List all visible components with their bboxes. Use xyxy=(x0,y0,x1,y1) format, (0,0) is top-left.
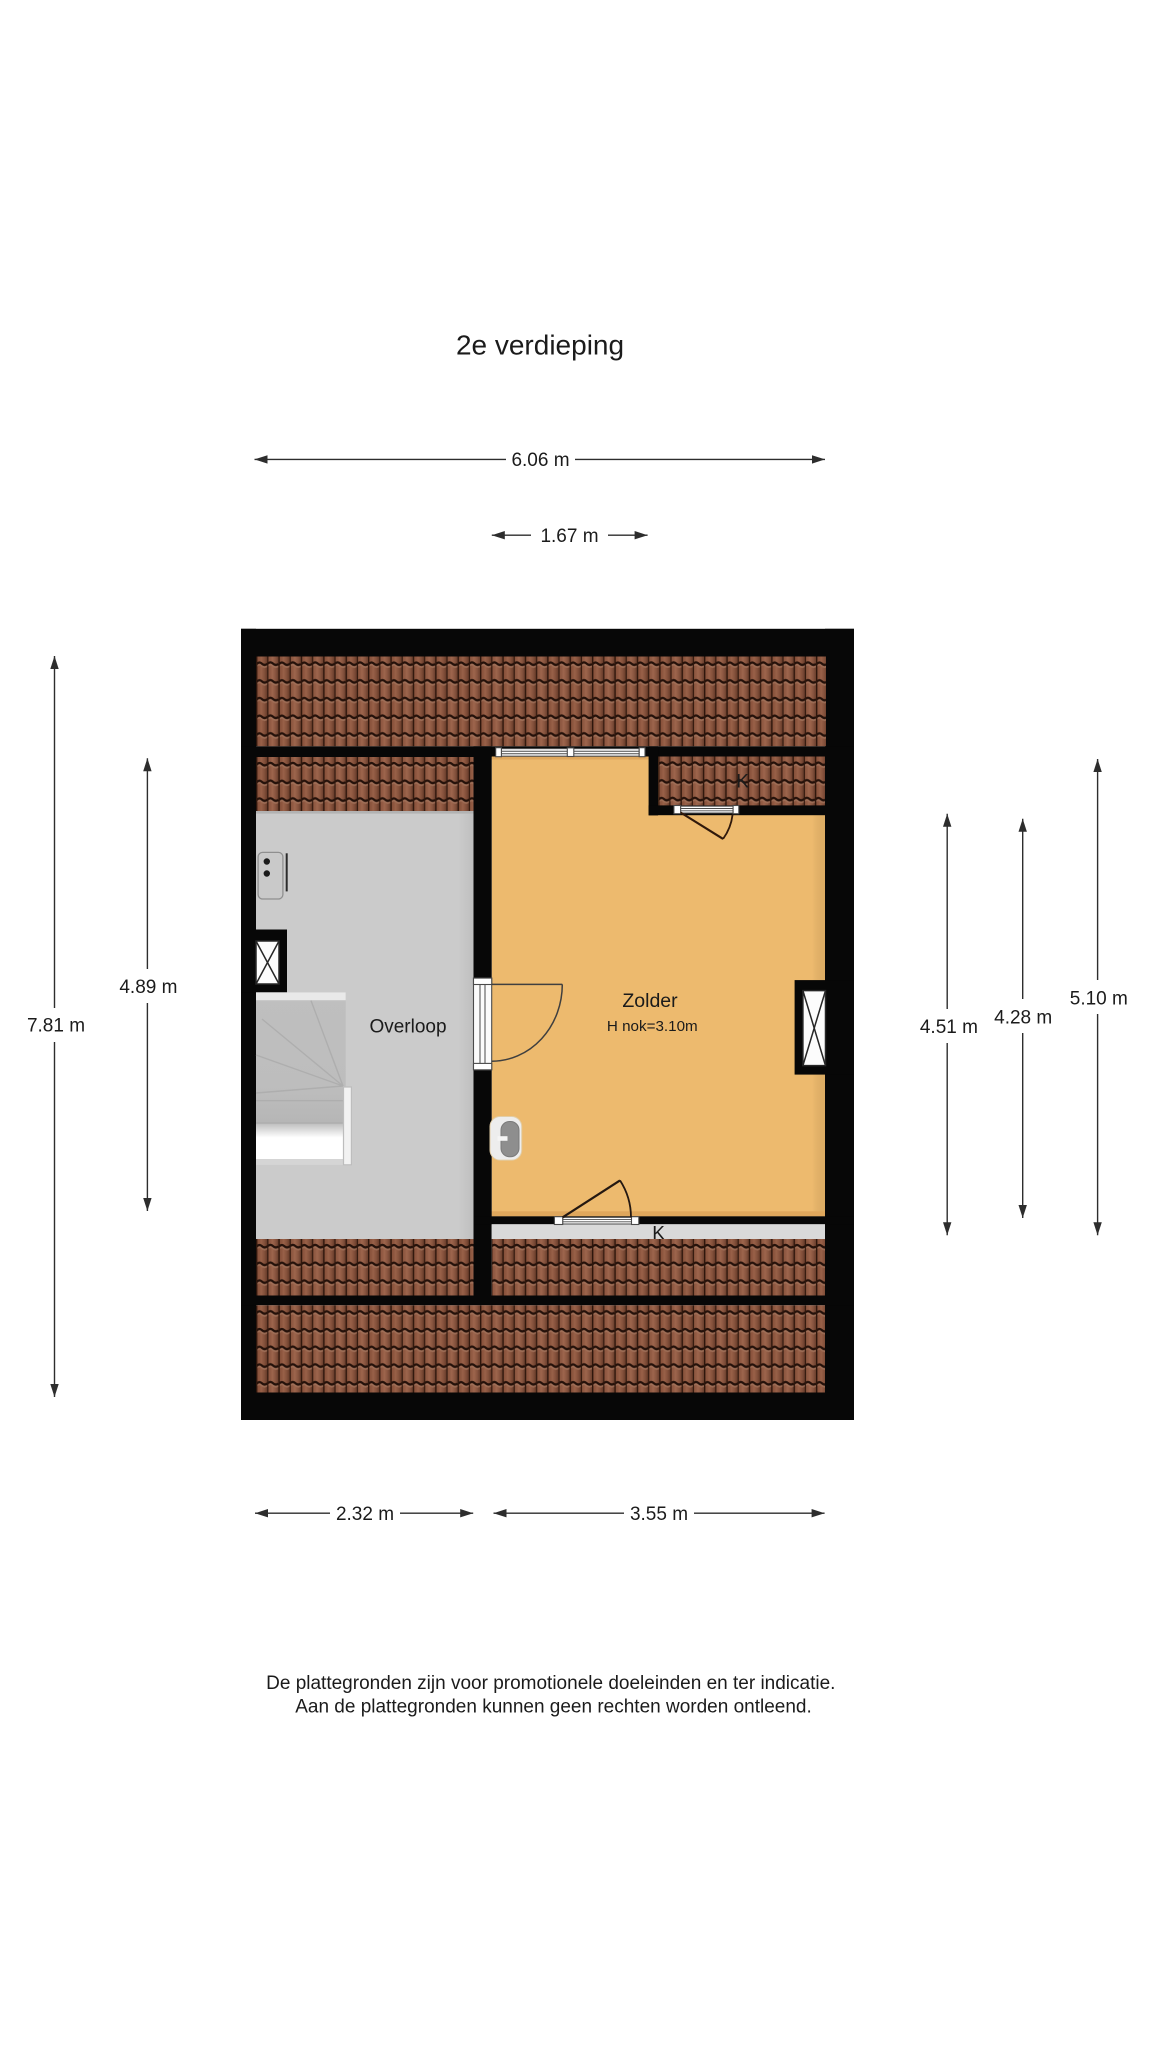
svg-text:2.32 m: 2.32 m xyxy=(336,1504,394,1525)
svg-text:5.10 m: 5.10 m xyxy=(1070,988,1128,1009)
svg-text:3.55 m: 3.55 m xyxy=(630,1504,688,1525)
svg-text:Zolder: Zolder xyxy=(622,990,678,1012)
svg-text:4.89 m: 4.89 m xyxy=(119,977,177,998)
svg-text:De plattegronden zijn voor pro: De plattegronden zijn voor promotionele … xyxy=(266,1673,835,1694)
svg-text:7.81 m: 7.81 m xyxy=(27,1016,85,1037)
svg-text:K: K xyxy=(736,772,749,793)
svg-text:H nok=3.10m: H nok=3.10m xyxy=(607,1018,698,1035)
svg-text:4.28 m: 4.28 m xyxy=(994,1007,1052,1028)
svg-text:Aan de plattegronden kunnen ge: Aan de plattegronden kunnen geen rechten… xyxy=(295,1696,812,1717)
svg-text:Overloop: Overloop xyxy=(369,1017,446,1038)
svg-text:6.06 m: 6.06 m xyxy=(511,450,569,471)
svg-text:4.51 m: 4.51 m xyxy=(920,1017,978,1038)
svg-text:2e verdieping: 2e verdieping xyxy=(456,330,624,361)
svg-text:1.67 m: 1.67 m xyxy=(540,526,598,547)
